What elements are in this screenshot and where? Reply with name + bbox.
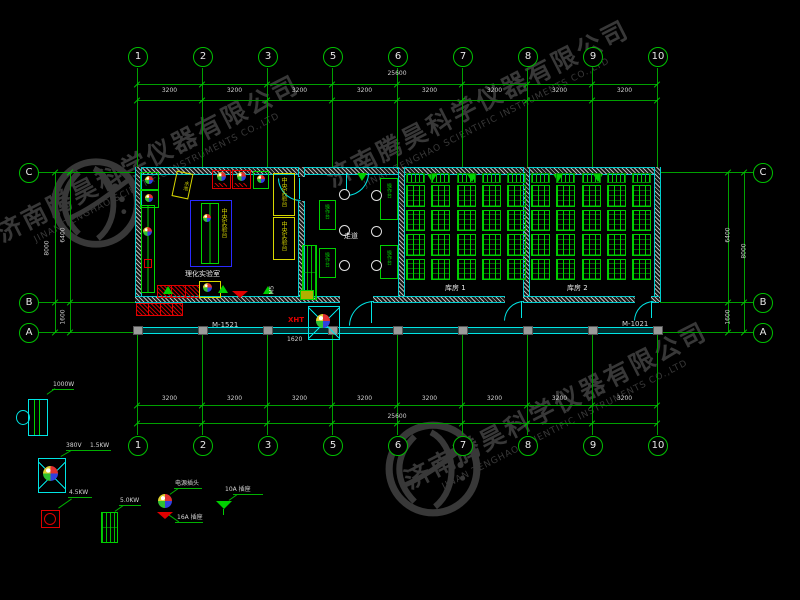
axis-bubble-top: 8 <box>518 47 538 67</box>
side-bench <box>141 205 155 293</box>
wall-cabinet <box>253 171 269 189</box>
cage-block <box>507 259 526 281</box>
cage-rack-column <box>431 173 450 283</box>
dim-left-lower: 1600 <box>61 309 67 324</box>
cage-block <box>556 259 575 281</box>
fan-motor-sphere <box>316 314 330 328</box>
cage-block <box>457 234 476 256</box>
ceiling-lamp-icon <box>371 260 382 271</box>
equipment-sphere <box>203 283 212 292</box>
dim-left-outer: 8000 <box>45 240 51 255</box>
cage-rack-column <box>531 173 550 283</box>
cage-block <box>607 234 626 256</box>
cage-block <box>507 185 526 207</box>
equipment-sphere <box>203 214 211 222</box>
cage-rack-column <box>457 173 476 283</box>
wall-south-inner-3 <box>523 296 635 303</box>
cage-block <box>582 210 601 232</box>
room-label-store1: 库房 1 <box>445 285 466 292</box>
dim-line-right <box>728 172 729 332</box>
cage-block <box>531 259 550 281</box>
cage-block <box>406 234 425 256</box>
cage-rack-column <box>556 173 575 283</box>
side-bench-yellow: 中央实验台 <box>273 173 295 216</box>
cage-block <box>457 259 476 281</box>
cage-block <box>457 185 476 207</box>
axis-bubble-top: 1 <box>128 47 148 67</box>
legend-plug-label: 电源插头 <box>175 481 199 487</box>
cage-rack-column <box>482 173 501 283</box>
cage-block <box>531 234 550 256</box>
floor-plan: 水池 中央实验台 中央实验台 中央实验台 理化实验室 <box>135 167 660 333</box>
legend-heater-icon <box>101 512 118 543</box>
legend-socket10-icon <box>216 501 232 509</box>
dim-bay-bottom: 3200 <box>410 396 450 402</box>
cage-block <box>431 210 450 232</box>
cage-rack-column <box>607 173 626 283</box>
cage-block <box>482 259 501 281</box>
axis-bubble-bottom: 9 <box>583 436 603 456</box>
door-leaf <box>371 301 372 323</box>
cage-rack-column <box>406 173 425 283</box>
dim-bay-bottom: 3200 <box>475 396 515 402</box>
cage-block <box>457 210 476 232</box>
dim-bay-top: 3200 <box>345 88 385 94</box>
column-marker <box>198 326 208 335</box>
column-marker <box>653 326 663 335</box>
cage-rack-column <box>632 173 651 283</box>
wall-cabinet <box>140 172 159 190</box>
column-marker <box>588 326 598 335</box>
radiator <box>185 285 200 298</box>
axis-bubble-right: A <box>753 323 773 343</box>
wall-east <box>654 167 661 302</box>
cage-rack-header <box>406 173 425 183</box>
legend-oven-power: 1000W <box>53 382 74 388</box>
axis-bubble-right: C <box>753 163 773 183</box>
fan-tag: XHT <box>288 317 304 324</box>
legend-socket10-label: 10A 插座 <box>225 487 251 493</box>
dim-bay-bottom: 3200 <box>345 396 385 402</box>
column-marker <box>263 326 273 335</box>
cage-block <box>531 210 550 232</box>
cabinet-labeled: 操作台 <box>319 200 336 230</box>
legend-heater-power: 5.0KW <box>120 498 139 504</box>
cage-block <box>431 185 450 207</box>
cabinet-labeled: 操作台 <box>380 245 398 279</box>
axis-bubble-left: C <box>19 163 39 183</box>
dim-bay-top: 3200 <box>280 88 320 94</box>
ceiling-lamp-icon <box>371 190 382 201</box>
socket-16a-icon <box>232 291 248 298</box>
dim-bay-bottom: 3200 <box>540 396 580 402</box>
dim-bay-top: 3200 <box>540 88 580 94</box>
cage-block <box>431 234 450 256</box>
dim-total-top: 25600 <box>137 71 657 77</box>
axis-bubble-top: 5 <box>323 47 343 67</box>
axis-bubble-bottom: 5 <box>323 436 343 456</box>
cage-rack-header <box>556 173 575 183</box>
dim-bay-top: 3200 <box>150 88 190 94</box>
axis-bubble-top: 7 <box>453 47 473 67</box>
cage-rack-header <box>457 173 476 183</box>
legend-oven-icon <box>28 399 48 436</box>
room-label-lab: 理化实验室 <box>185 271 220 278</box>
central-bench <box>201 203 219 264</box>
axis-bubble-right: B <box>753 293 773 313</box>
axis-bubble-left: A <box>19 323 39 343</box>
cage-block <box>507 210 526 232</box>
axis-bubble-top: 10 <box>648 47 668 67</box>
column-marker <box>393 326 403 335</box>
dim-bay-top: 3200 <box>410 88 450 94</box>
cage-block <box>607 210 626 232</box>
dim-left-upper: 6400 <box>61 227 67 242</box>
radiator <box>172 303 183 316</box>
cage-rack-header <box>482 173 501 183</box>
stove-unit <box>212 170 231 189</box>
dim-bay-top: 3200 <box>475 88 515 94</box>
legend-plug-icon <box>158 494 172 508</box>
axis-bubble-top: 6 <box>388 47 408 67</box>
door-tag: M5 <box>270 286 276 295</box>
dim-total-bottom: 25600 <box>137 414 657 420</box>
dim-line-left <box>70 172 71 332</box>
cage-block <box>607 185 626 207</box>
column-marker <box>523 326 533 335</box>
wall-left-room-east-top <box>298 167 305 177</box>
door-leaf <box>651 301 652 318</box>
cage-block <box>632 259 651 281</box>
ceiling-lamp-icon <box>339 260 350 271</box>
legend-socket16-label: 16A 插座 <box>177 515 203 521</box>
lamp-wedge-icon <box>218 285 228 293</box>
corridor-label: 走道 <box>344 233 358 240</box>
column-marker <box>133 326 143 335</box>
dim-bay-bottom: 3200 <box>215 396 255 402</box>
stove-unit <box>232 170 251 189</box>
axis-bubble-top: 9 <box>583 47 603 67</box>
dim-bay-bottom: 3200 <box>280 396 320 402</box>
lamp-wedge-icon <box>357 173 367 181</box>
axis-bubble-bottom: 6 <box>388 436 408 456</box>
cage-block <box>632 210 651 232</box>
cabinet-labeled: 操作台 <box>380 178 398 220</box>
dim-bay-top: 3200 <box>605 88 645 94</box>
dim-right-lower: 1600 <box>726 309 732 324</box>
axis-bubble-left: B <box>19 293 39 313</box>
column-marker <box>458 326 468 335</box>
door-label-right: M-1021 <box>622 321 648 328</box>
dim-bay-bottom: 3200 <box>605 396 645 402</box>
dim-right-upper: 6400 <box>726 227 732 242</box>
cad-drawing-canvas: 济南腾昊科学仪器有限公司 JINAN TENGHAO SCIENTIFIC IN… <box>0 0 800 600</box>
axis-bubble-top: 2 <box>193 47 213 67</box>
cage-block <box>556 234 575 256</box>
axis-bubble-bottom: 7 <box>453 436 473 456</box>
cage-block <box>582 234 601 256</box>
cage-block <box>431 259 450 281</box>
cage-block <box>406 185 425 207</box>
axis-bubble-bottom: 1 <box>128 436 148 456</box>
dim-bay-top: 3200 <box>215 88 255 94</box>
cage-rack-header <box>431 173 450 183</box>
sink-unit: 水池 <box>171 171 193 200</box>
cage-rack-header <box>531 173 550 183</box>
dim-right-outer: 8000 <box>742 243 748 258</box>
central-bench-label: 中央实验台 <box>220 208 226 238</box>
cage-block <box>406 259 425 281</box>
door-label-left: M-1521 <box>212 322 238 329</box>
equipment-sphere <box>143 227 152 236</box>
axis-bubble-bottom: 10 <box>648 436 668 456</box>
legend-fan-voltage: 380V <box>66 443 82 449</box>
cage-rack-header <box>632 173 651 183</box>
lamp-wedge-icon <box>163 286 173 294</box>
axis-bubble-top: 3 <box>258 47 278 67</box>
cage-block <box>632 185 651 207</box>
cage-block <box>582 185 601 207</box>
door-leaf <box>521 301 522 318</box>
dim-line-left <box>55 172 56 332</box>
wall-south-inner-2 <box>373 296 505 303</box>
cage-block <box>632 234 651 256</box>
cage-block <box>482 210 501 232</box>
axis-bubble-bottom: 2 <box>193 436 213 456</box>
grid-line-vertical <box>657 333 658 435</box>
cage-rack-header <box>582 173 601 183</box>
dim-bay-bottom: 3200 <box>150 396 190 402</box>
cage-rack-header <box>507 173 526 183</box>
door-leaf <box>299 178 300 199</box>
legend-fan-power: 1.5KW <box>90 443 109 449</box>
radiator <box>171 285 186 298</box>
cage-block <box>482 234 501 256</box>
ceiling-lamp-icon <box>371 226 382 237</box>
axis-bubble-bottom: 3 <box>258 436 278 456</box>
service-box <box>300 290 314 300</box>
cabinet-labeled: 操作台 <box>319 248 336 278</box>
cage-block <box>582 259 601 281</box>
cage-block <box>607 259 626 281</box>
cage-block <box>507 234 526 256</box>
wall-middle-east <box>398 167 405 300</box>
legend-stove-power: 4.5KW <box>69 490 88 496</box>
axis-bubble-bottom: 8 <box>518 436 538 456</box>
cage-rack-header <box>607 173 626 183</box>
small-dimension: 1620 <box>287 337 302 343</box>
cage-block <box>556 210 575 232</box>
cage-block <box>531 185 550 207</box>
legend-stove-icon <box>41 510 60 528</box>
cage-block <box>482 185 501 207</box>
cage-block <box>556 185 575 207</box>
cage-rack-column <box>507 173 526 283</box>
room-label-store2: 库房 2 <box>567 285 588 292</box>
small-device <box>144 259 152 268</box>
cage-block <box>406 210 425 232</box>
cage-rack-column <box>582 173 601 283</box>
ceiling-lamp-icon <box>339 189 350 200</box>
side-bench-yellow: 中央实验台 <box>273 217 295 260</box>
